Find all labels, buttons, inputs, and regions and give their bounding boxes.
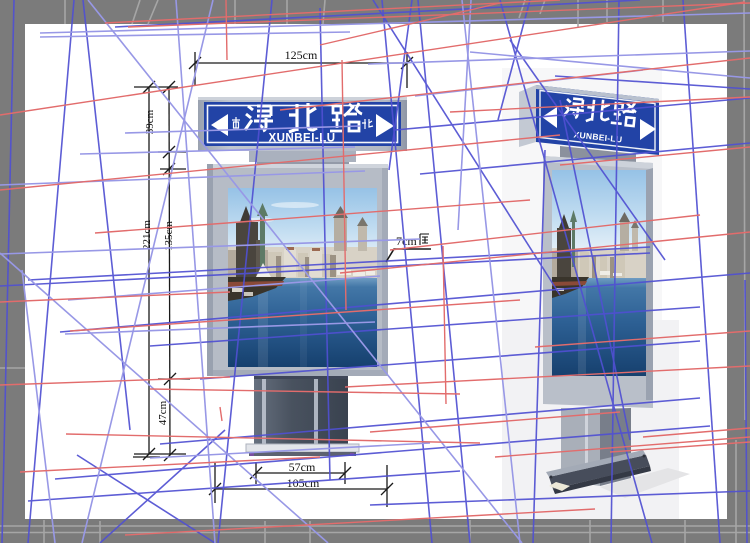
svg-text:221cm: 221cm xyxy=(141,220,153,250)
svg-text:XUNBEI-LU: XUNBEI-LU xyxy=(268,133,335,145)
svg-text:135cm: 135cm xyxy=(163,221,175,251)
svg-text:125cm: 125cm xyxy=(285,48,318,62)
svg-text:7cm: 7cm xyxy=(396,234,417,248)
svg-text:57cm: 57cm xyxy=(289,460,316,474)
svg-text:39cm: 39cm xyxy=(144,109,156,134)
svg-text:47cm: 47cm xyxy=(157,400,169,425)
